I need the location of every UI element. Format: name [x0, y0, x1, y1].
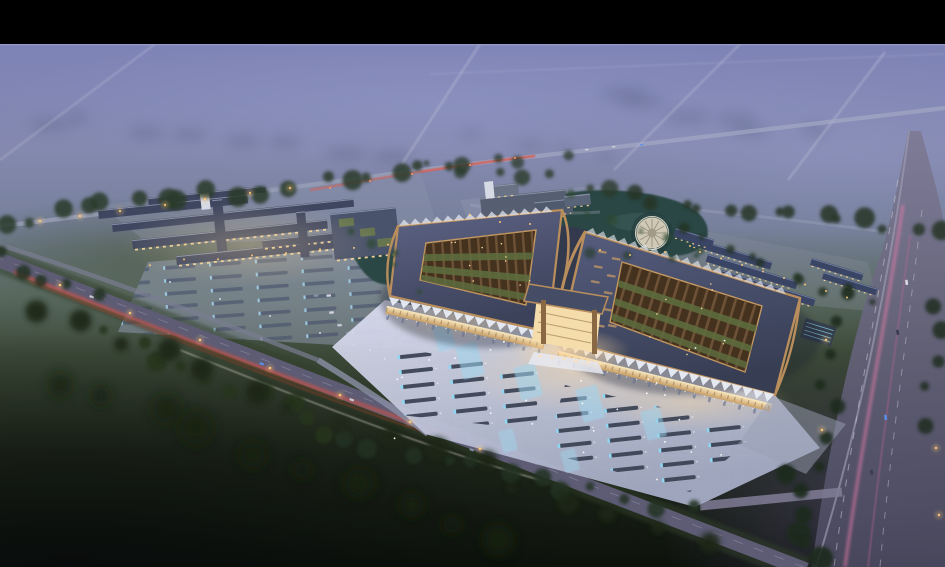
light-dot — [720, 454, 722, 456]
light-dot — [490, 349, 492, 351]
tree — [648, 501, 665, 518]
light-dot — [454, 357, 456, 359]
tree — [246, 381, 270, 405]
light-dot — [665, 299, 667, 301]
tree — [599, 505, 616, 522]
tree — [382, 426, 402, 446]
light-dot — [529, 280, 531, 282]
tree — [16, 265, 31, 280]
tree — [357, 439, 377, 459]
light-dot — [656, 313, 658, 315]
tree — [139, 337, 151, 349]
light-dot — [580, 380, 582, 382]
light-dot — [269, 315, 271, 317]
light-dot — [289, 187, 291, 189]
tree — [344, 468, 373, 497]
tree — [586, 184, 594, 192]
light-dot — [269, 367, 272, 370]
light-dot — [451, 242, 453, 244]
tree — [99, 326, 108, 335]
light-dot — [519, 284, 521, 286]
light-dot — [762, 271, 764, 273]
hotel-tower — [484, 181, 495, 199]
light-dot — [689, 245, 691, 247]
light-dot — [469, 164, 471, 166]
light-dot — [664, 251, 666, 253]
light-dot — [505, 260, 507, 262]
tree — [741, 205, 757, 221]
light-dot — [724, 340, 726, 342]
tree — [619, 494, 629, 504]
tree — [643, 196, 658, 211]
light-dot — [646, 392, 648, 394]
letterbox — [0, 0, 945, 45]
light-dot — [472, 280, 474, 282]
tree — [756, 258, 765, 267]
gate-pylon — [541, 300, 546, 344]
light-dot — [783, 277, 785, 279]
light-dot — [79, 215, 81, 217]
tree — [514, 169, 530, 185]
tree — [24, 218, 34, 228]
market-glow — [120, 203, 380, 287]
light-dot — [525, 400, 527, 402]
car — [326, 294, 331, 297]
tree — [749, 253, 756, 260]
light-dot — [369, 349, 371, 351]
tree — [35, 275, 47, 287]
tree — [69, 309, 91, 331]
tree — [175, 361, 186, 372]
light-dot — [169, 281, 171, 283]
light-dot — [629, 254, 631, 256]
tree — [668, 255, 676, 263]
tree — [651, 521, 664, 534]
light-dot — [319, 332, 321, 334]
light-dot — [481, 247, 483, 249]
light-dot — [199, 339, 202, 342]
light-dot — [616, 409, 618, 411]
distant-forest-patch — [224, 135, 261, 148]
distant-forest-patch — [127, 127, 165, 140]
tree — [348, 228, 355, 235]
tree — [191, 358, 213, 380]
tree — [167, 190, 187, 210]
tree — [627, 185, 643, 201]
tree — [607, 214, 618, 225]
tree — [920, 382, 929, 391]
tree — [454, 166, 466, 178]
car — [337, 324, 342, 327]
light-dot — [469, 265, 471, 267]
distant-forest-patch — [269, 136, 301, 149]
tree — [726, 245, 735, 254]
light-dot — [804, 284, 806, 286]
tree — [830, 399, 845, 414]
light-dot — [695, 347, 697, 349]
tree — [679, 223, 690, 234]
tree — [725, 205, 737, 217]
light-dot — [411, 173, 413, 175]
light-dot — [387, 244, 389, 246]
tree — [638, 229, 643, 234]
tree — [831, 316, 843, 328]
tree — [152, 395, 180, 423]
light-dot — [593, 430, 595, 432]
light-dot — [501, 243, 503, 245]
distant-forest-patch — [173, 129, 207, 142]
light-dot — [720, 258, 722, 260]
light-dot — [394, 437, 396, 439]
light-dot — [647, 378, 649, 380]
tree — [132, 190, 147, 205]
tree — [793, 483, 808, 498]
tree — [336, 418, 346, 428]
tree — [299, 410, 314, 425]
tree — [90, 192, 108, 210]
light-dot — [825, 290, 827, 292]
distant-forest-patch — [325, 147, 367, 160]
tree — [393, 163, 412, 182]
light-dot — [938, 514, 940, 516]
light-dot — [583, 451, 585, 453]
tree — [335, 430, 352, 447]
tree — [423, 160, 429, 166]
tree — [496, 168, 505, 177]
light-dot — [539, 355, 542, 358]
tree — [443, 516, 461, 534]
fountain-island — [633, 214, 671, 252]
light-dot — [723, 343, 725, 345]
light-dot — [599, 249, 601, 251]
light-dot — [529, 223, 531, 225]
car — [314, 294, 319, 297]
car — [640, 144, 643, 145]
light-dot — [454, 242, 456, 244]
distant-forest-patch — [597, 150, 615, 161]
tree — [691, 204, 700, 213]
light-dot — [599, 362, 602, 365]
tree — [558, 492, 578, 512]
light-dot — [825, 339, 827, 341]
tree — [584, 247, 595, 258]
distant-forest-patch — [66, 112, 88, 125]
light-dot — [129, 312, 132, 315]
tree — [294, 462, 311, 479]
light-dot — [649, 336, 651, 338]
tree — [282, 402, 292, 412]
light-dot — [514, 157, 516, 159]
light-dot — [678, 419, 680, 421]
tree — [49, 374, 72, 397]
tree — [343, 170, 363, 190]
tree — [699, 234, 705, 240]
tree — [841, 286, 855, 300]
car — [612, 146, 615, 147]
distant-forest-patch — [460, 129, 479, 140]
tree — [223, 384, 237, 398]
tree — [854, 207, 875, 228]
light-dot — [164, 204, 166, 206]
light-dot — [396, 378, 398, 380]
tree — [323, 171, 334, 182]
light-dot — [587, 361, 590, 364]
light-dot — [664, 441, 666, 443]
tree — [417, 289, 423, 295]
light-dot — [39, 220, 41, 222]
light-dot — [217, 258, 219, 260]
tree — [566, 189, 575, 198]
light-dot — [563, 358, 566, 361]
distant-forest-patch — [31, 119, 69, 132]
tree — [445, 162, 454, 171]
light-dot — [935, 447, 937, 449]
tree — [815, 379, 826, 390]
light-dot — [149, 264, 151, 266]
tree — [391, 249, 399, 257]
tree — [315, 426, 332, 443]
light-dot — [741, 264, 743, 266]
light-dot — [711, 289, 713, 291]
tree — [463, 452, 478, 467]
tree — [483, 524, 514, 555]
light-dot — [710, 283, 712, 285]
tree — [586, 482, 595, 491]
light-dot — [285, 252, 287, 254]
light-dot — [409, 421, 412, 424]
tree — [799, 538, 810, 549]
tree — [367, 239, 377, 249]
tree — [406, 447, 423, 464]
light-dot — [59, 284, 62, 287]
light-dot — [219, 298, 221, 300]
light-dot — [119, 210, 121, 212]
tree — [693, 252, 699, 258]
tree — [563, 150, 573, 160]
tree — [663, 233, 672, 242]
tree — [534, 469, 552, 487]
light-dot — [204, 198, 206, 200]
tree — [180, 412, 212, 444]
fountain-core — [648, 229, 657, 238]
tree — [584, 211, 590, 217]
light-dot — [531, 423, 533, 425]
light-dot — [656, 382, 658, 384]
tree — [494, 154, 503, 163]
light-dot — [499, 221, 501, 223]
tree — [699, 532, 719, 552]
tree — [54, 199, 72, 217]
tree — [913, 223, 925, 235]
light-dot — [699, 251, 701, 253]
light-dot — [686, 354, 688, 356]
tree — [869, 299, 875, 305]
light-dot — [846, 297, 848, 299]
tree — [794, 275, 804, 285]
tree — [925, 298, 941, 314]
light-dot — [249, 192, 251, 194]
light-dot — [551, 356, 554, 359]
light-dot — [369, 180, 371, 182]
tree — [25, 300, 48, 323]
tree — [825, 349, 836, 360]
light-dot — [490, 412, 492, 414]
light-dot — [664, 394, 666, 396]
light-dot — [183, 258, 185, 260]
light-dot — [428, 359, 430, 361]
light-dot — [319, 248, 321, 250]
light-dot — [503, 341, 505, 343]
tree — [832, 214, 841, 223]
tree — [878, 225, 887, 234]
light-dot — [505, 256, 507, 258]
tree — [511, 156, 524, 169]
light-dot — [329, 187, 331, 189]
horizon-edge — [0, 44, 945, 45]
gate-pylon — [592, 310, 597, 354]
tree — [918, 418, 934, 434]
car — [329, 311, 334, 314]
tree — [478, 450, 498, 470]
tree — [412, 160, 423, 171]
tree — [251, 186, 269, 204]
light-dot — [339, 394, 342, 397]
distant-forest-patch — [513, 140, 546, 151]
tree — [392, 262, 397, 267]
light-dot — [690, 451, 692, 453]
light-dot — [656, 479, 658, 481]
light-dot — [821, 429, 823, 431]
tree — [501, 464, 521, 484]
light-dot — [582, 402, 584, 404]
tree — [683, 200, 692, 209]
light-dot — [688, 349, 690, 351]
tree — [814, 462, 824, 472]
tree — [507, 483, 517, 493]
letterbox-bar — [0, 0, 945, 44]
tree — [601, 180, 618, 197]
tree — [688, 500, 700, 512]
light-dot — [353, 247, 355, 249]
tree — [545, 169, 554, 178]
scene-canvas — [0, 0, 945, 567]
light-dot — [701, 308, 703, 310]
light-dot — [726, 274, 728, 276]
distant-forest-patch — [620, 95, 663, 109]
tree — [240, 442, 266, 468]
light-dot — [401, 376, 403, 378]
tree — [114, 337, 128, 351]
light-dot — [575, 359, 578, 362]
tree — [932, 355, 944, 367]
tree — [158, 338, 181, 361]
light-dot — [251, 255, 253, 257]
tree — [400, 493, 424, 517]
light-dot — [479, 448, 482, 451]
tree — [93, 288, 106, 301]
aerial-rendering — [0, 0, 945, 567]
tree — [795, 506, 812, 523]
car — [585, 149, 588, 150]
tree — [92, 386, 110, 404]
tree — [782, 205, 795, 218]
tree — [426, 437, 449, 460]
tree — [228, 187, 248, 207]
tree — [776, 464, 795, 483]
light-dot — [469, 214, 471, 216]
